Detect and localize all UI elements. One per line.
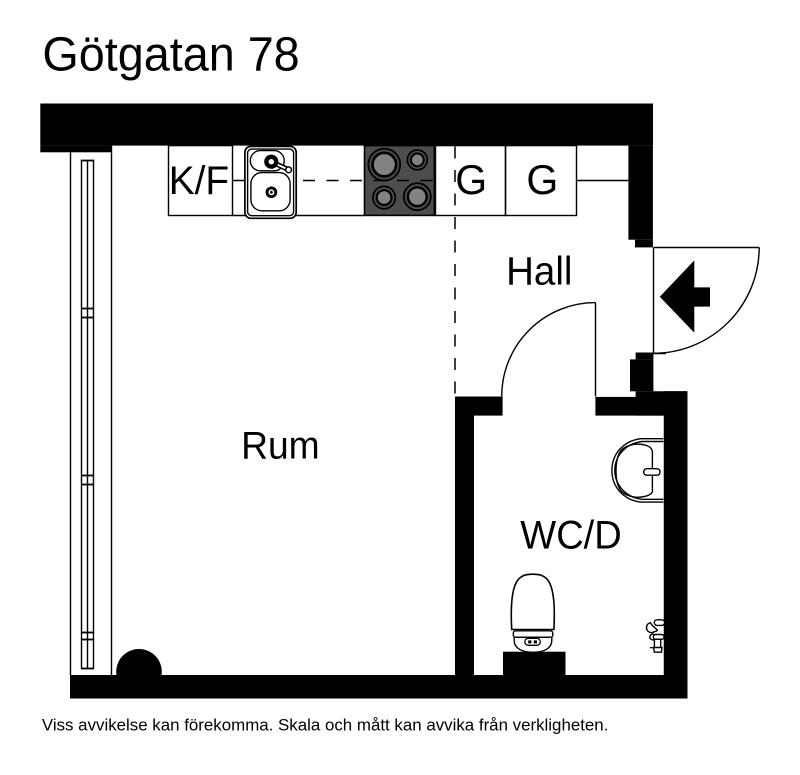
svg-text:G: G [455, 156, 487, 203]
svg-text:Viss avvikelse kan förekomma.: Viss avvikelse kan förekomma. Skala och … [42, 716, 609, 735]
svg-text:WC/D: WC/D [520, 513, 621, 557]
svg-text:Hall: Hall [506, 249, 572, 293]
svg-text:Götgatan 78: Götgatan 78 [42, 29, 299, 82]
svg-text:Rum: Rum [241, 425, 320, 468]
svg-text:G: G [526, 156, 558, 203]
svg-text:K/F: K/F [169, 159, 229, 203]
